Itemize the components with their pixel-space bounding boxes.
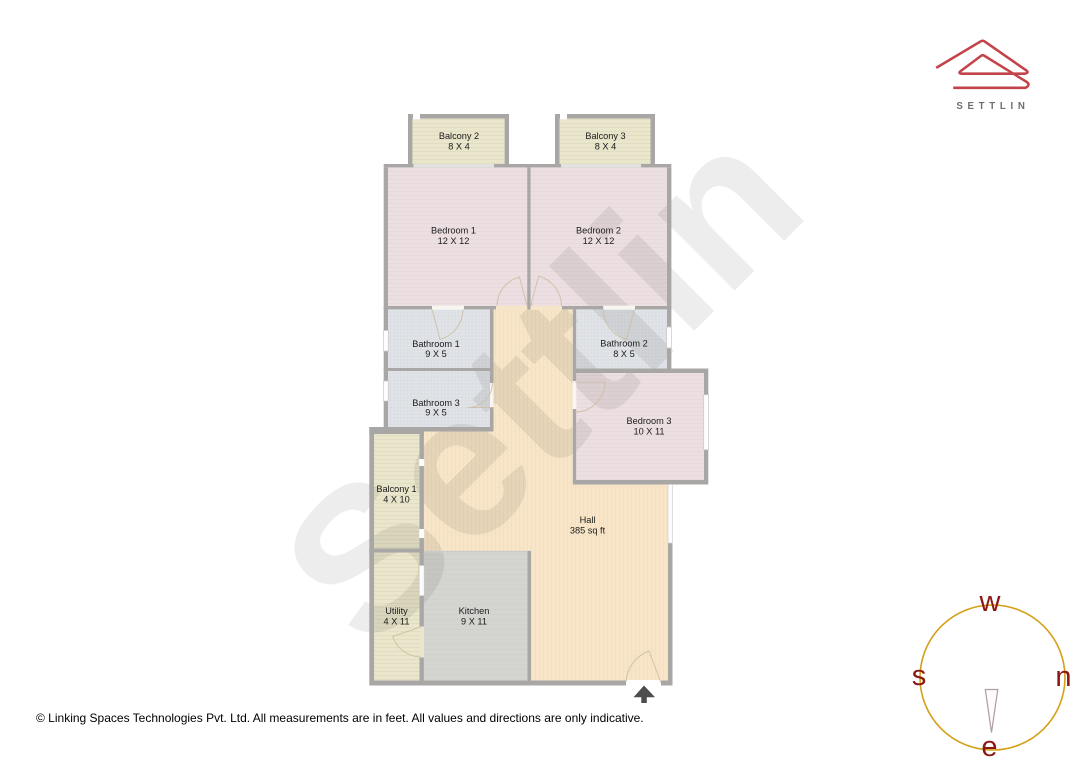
svg-text:Bathroom 2: Bathroom 2 <box>600 339 648 349</box>
svg-text:Bedroom 2: Bedroom 2 <box>576 226 621 236</box>
svg-text:e: e <box>981 731 997 763</box>
svg-text:Balcony 2: Balcony 2 <box>439 131 479 141</box>
svg-text:10 X 11: 10 X 11 <box>634 427 665 437</box>
svg-text:n: n <box>1055 661 1071 693</box>
svg-text:4 X 10: 4 X 10 <box>383 495 410 505</box>
svg-text:12 X 12: 12 X 12 <box>583 236 615 246</box>
svg-text:9 X 5: 9 X 5 <box>425 408 446 418</box>
svg-text:s: s <box>912 660 927 692</box>
svg-text:Bathroom 1: Bathroom 1 <box>412 339 460 349</box>
svg-text:9 X 5: 9 X 5 <box>425 349 446 359</box>
svg-text:Balcony 1: Balcony 1 <box>376 484 416 494</box>
svg-text:8 X 4: 8 X 4 <box>595 142 616 152</box>
svg-text:© Linking Spaces Technologies: © Linking Spaces Technologies Pvt. Ltd. … <box>36 711 644 725</box>
svg-text:9 X 11: 9 X 11 <box>461 617 487 627</box>
svg-text:8 X 5: 8 X 5 <box>613 349 634 359</box>
svg-text:12 X 12: 12 X 12 <box>438 236 470 246</box>
svg-text:Bathroom 3: Bathroom 3 <box>412 398 460 408</box>
svg-text:Kitchen: Kitchen <box>459 606 490 616</box>
svg-text:Utility: Utility <box>385 606 408 616</box>
svg-text:385 sq ft: 385 sq ft <box>570 526 606 536</box>
svg-text:w: w <box>979 586 1002 618</box>
svg-text:Bedroom 3: Bedroom 3 <box>627 416 672 426</box>
svg-text:SETTLIN: SETTLIN <box>956 101 1029 112</box>
svg-text:Balcony 3: Balcony 3 <box>585 131 625 141</box>
svg-text:8 X 4: 8 X 4 <box>448 142 469 152</box>
svg-text:4 X 11: 4 X 11 <box>384 617 410 627</box>
svg-text:Hall: Hall <box>580 515 596 525</box>
svg-text:Bedroom 1: Bedroom 1 <box>431 226 476 236</box>
